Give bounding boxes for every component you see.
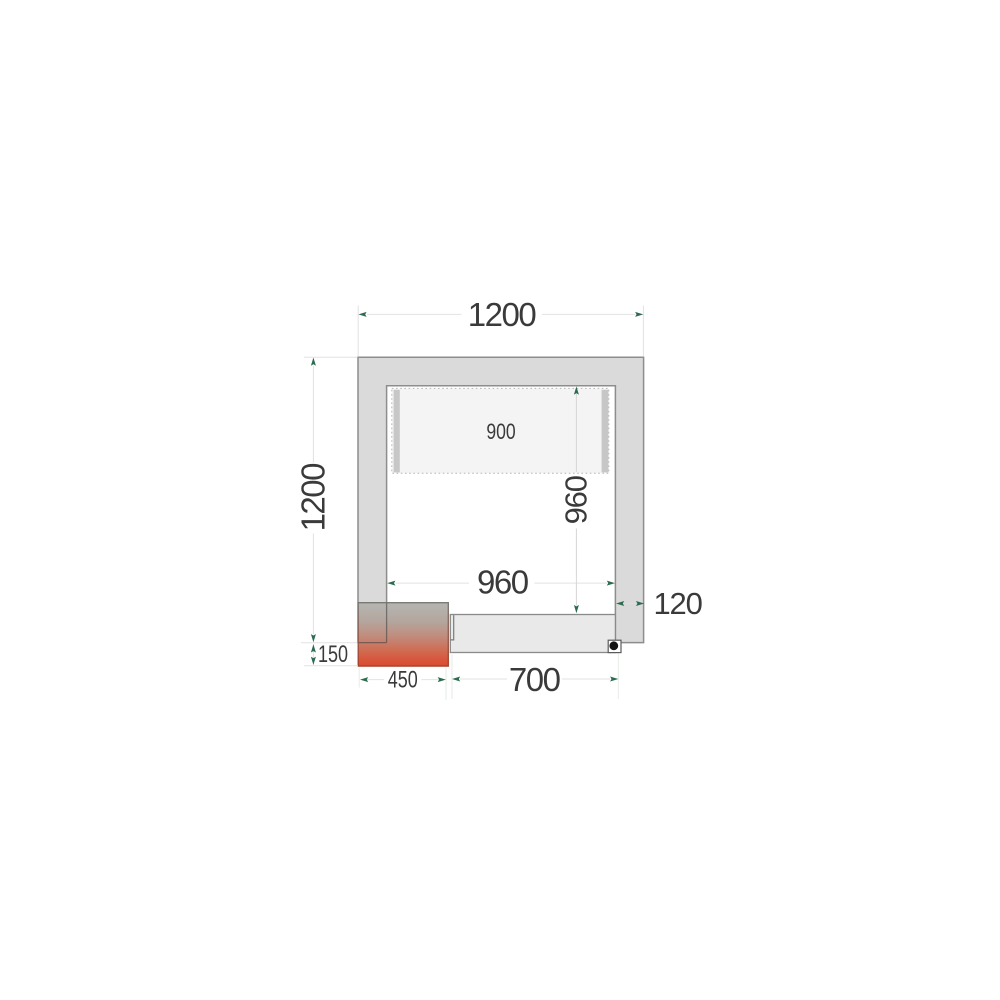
svg-text:960: 960 — [477, 564, 529, 601]
svg-text:1200: 1200 — [295, 463, 332, 532]
svg-text:1200: 1200 — [468, 296, 537, 333]
svg-text:900: 900 — [486, 420, 515, 444]
svg-text:450: 450 — [388, 667, 418, 693]
svg-text:150: 150 — [318, 642, 348, 668]
svg-text:960: 960 — [558, 475, 593, 524]
svg-text:700: 700 — [509, 661, 561, 698]
svg-text:120: 120 — [654, 586, 703, 621]
